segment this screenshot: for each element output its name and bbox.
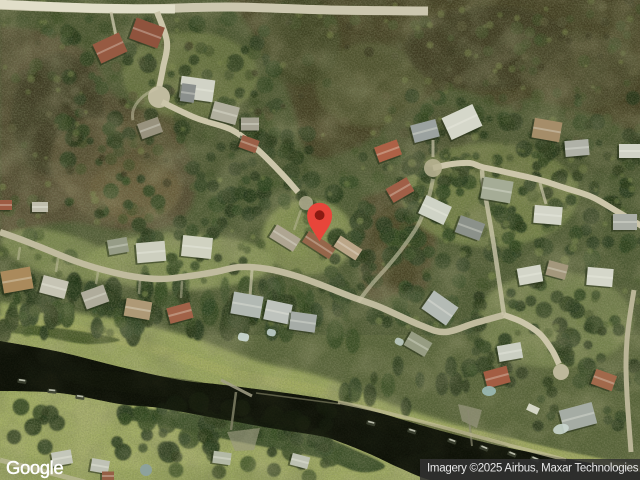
- svg-text:Google: Google: [6, 457, 63, 478]
- svg-text:Imagery ©2025 Airbus, Maxar Te: Imagery ©2025 Airbus, Maxar Technologies: [427, 463, 639, 475]
